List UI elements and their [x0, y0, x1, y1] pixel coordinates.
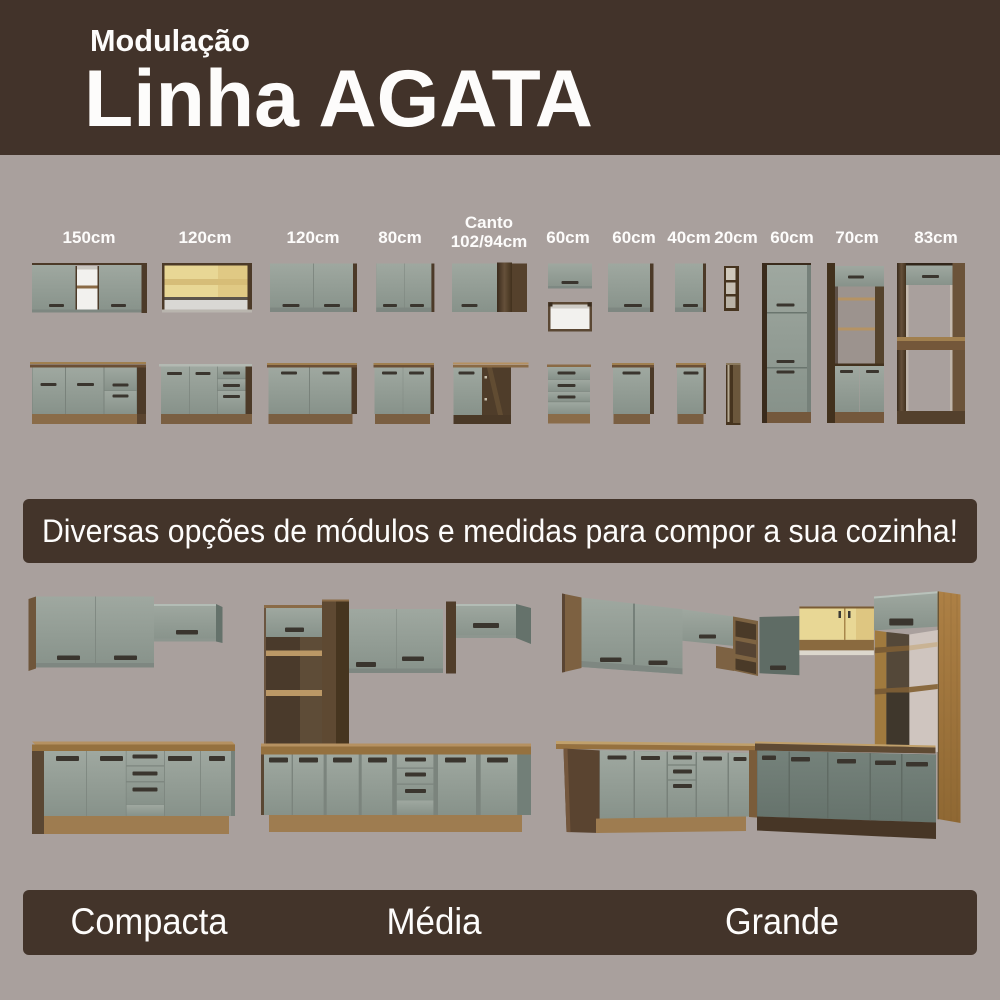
svg-text:60cm: 60cm: [546, 228, 589, 247]
svg-text:70cm: 70cm: [835, 228, 878, 247]
svg-text:80cm: 80cm: [378, 228, 421, 247]
svg-text:83cm: 83cm: [914, 228, 957, 247]
svg-text:Canto: Canto: [465, 213, 513, 232]
svg-text:120cm: 120cm: [179, 228, 232, 247]
svg-text:Modulação: Modulação: [90, 23, 250, 58]
svg-text:Média: Média: [387, 901, 482, 942]
svg-text:40cm: 40cm: [667, 228, 710, 247]
svg-text:60cm: 60cm: [770, 228, 813, 247]
svg-text:120cm: 120cm: [287, 228, 340, 247]
svg-text:Diversas opções de módulos e m: Diversas opções de módulos e medidas par…: [42, 513, 958, 549]
svg-text:Grande: Grande: [725, 901, 839, 942]
svg-text:Linha AGATA: Linha AGATA: [84, 54, 593, 144]
svg-text:102/94cm: 102/94cm: [451, 232, 528, 251]
svg-text:20cm: 20cm: [714, 228, 757, 247]
svg-text:Compacta: Compacta: [71, 901, 228, 942]
svg-text:150cm: 150cm: [63, 228, 116, 247]
svg-text:60cm: 60cm: [612, 228, 655, 247]
